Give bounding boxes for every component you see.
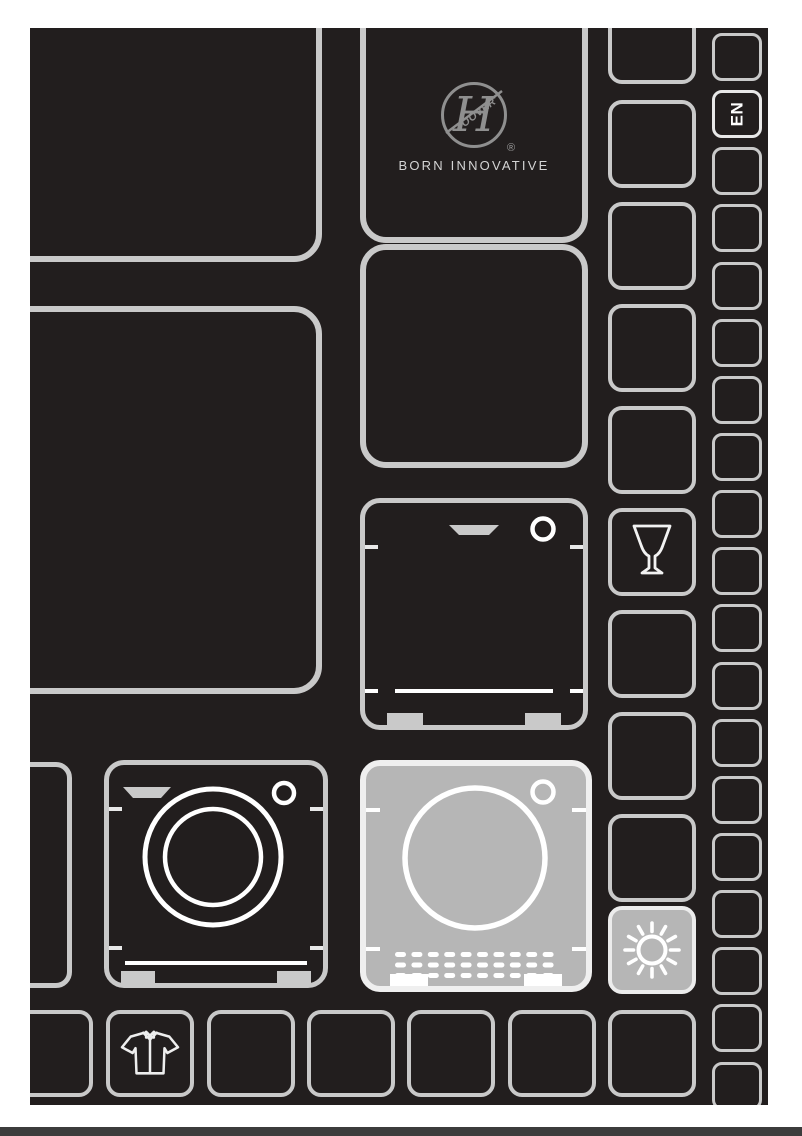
wine-glass-icon (630, 523, 674, 581)
language-badge: EN (712, 90, 762, 138)
grid-tile (608, 406, 696, 494)
grid-tile (712, 604, 762, 652)
grid-tile (712, 262, 762, 310)
page-bottom-bar (0, 1127, 802, 1136)
grid-tile (608, 1010, 696, 1097)
registered-mark: ® (507, 142, 515, 154)
sun-tile (608, 906, 696, 994)
shirt-tile (106, 1010, 194, 1097)
hoover-logo: H OOVER ® BORN INNOVATIVE (366, 28, 582, 237)
wine-glass-tile (608, 508, 696, 596)
grid-tile (407, 1010, 495, 1097)
grid-tile (712, 662, 762, 710)
dishwasher-icon (365, 503, 583, 725)
grid-tile (712, 147, 762, 195)
tile-blank-mid-center (360, 244, 588, 468)
grid-tile (207, 1010, 295, 1097)
grid-tile (712, 719, 762, 767)
grid-tile (30, 1010, 93, 1097)
tumble-dryer-tile (360, 760, 592, 992)
grid-tile (712, 204, 762, 252)
grid-tile (712, 833, 762, 881)
manual-cover-page: H OOVER ® BORN INNOVATIVE (0, 0, 802, 1136)
washing-machine-tile (104, 760, 328, 988)
grid-tile (712, 547, 762, 595)
grid-tile (608, 814, 696, 902)
grid-tile (712, 433, 762, 481)
grid-tile (712, 33, 762, 81)
grid-tile (712, 947, 762, 995)
grid-tile (508, 1010, 596, 1097)
brand-tagline: BORN INNOVATIVE (366, 158, 582, 173)
grid-tile (712, 376, 762, 424)
grid-tile (712, 890, 762, 938)
tile-large-mid-left (30, 306, 322, 694)
grid-tile (712, 1004, 762, 1052)
tumble-dryer-icon (366, 766, 586, 986)
language-badge-label: EN (727, 102, 747, 127)
grid-tile (608, 100, 696, 188)
sun-icon (622, 920, 682, 980)
cover-tile-collage: H OOVER ® BORN INNOVATIVE (30, 28, 768, 1105)
tile-partial-left-appliance-row (30, 762, 72, 988)
dishwasher-tile (360, 498, 588, 730)
tile-large-top-left (30, 28, 322, 262)
grid-tile (712, 1062, 762, 1105)
grid-tile (712, 776, 762, 824)
grid-tile (307, 1010, 395, 1097)
grid-tile (712, 319, 762, 367)
brand-logo-tile: H OOVER ® BORN INNOVATIVE (360, 28, 588, 243)
grid-tile (608, 712, 696, 800)
hoover-logo-roundel: H OOVER (429, 70, 519, 160)
shirt-icon (118, 1026, 182, 1082)
grid-tile (608, 202, 696, 290)
grid-tile (608, 28, 696, 84)
washing-machine-icon (109, 765, 323, 983)
grid-tile (608, 610, 696, 698)
grid-tile (712, 490, 762, 538)
grid-tile (608, 304, 696, 392)
